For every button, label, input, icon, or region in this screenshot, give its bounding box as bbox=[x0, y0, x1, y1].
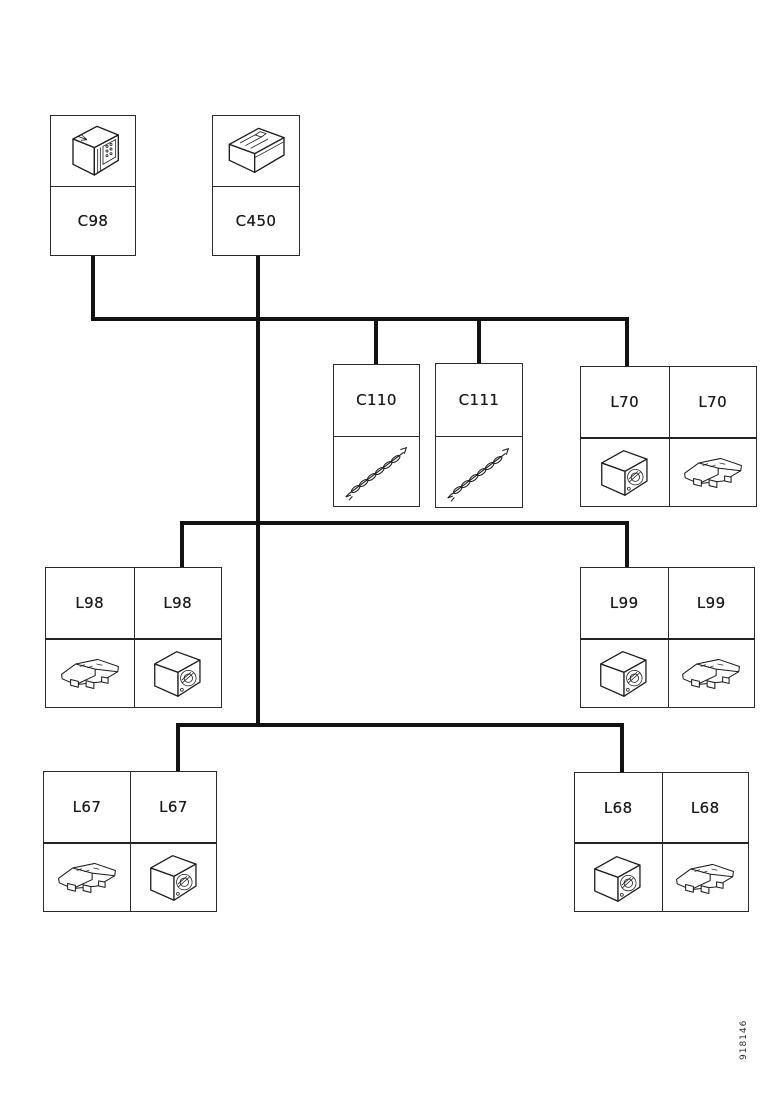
figure-number: 918146 bbox=[739, 1002, 755, 1060]
node-c110-label: C110 bbox=[334, 365, 419, 436]
lamp-unit-icon bbox=[584, 642, 664, 704]
wire-l70-drop bbox=[625, 317, 629, 367]
wiring-harness-icon bbox=[338, 439, 416, 503]
wire-l98-drop bbox=[180, 521, 184, 568]
lamp-bracket-icon bbox=[665, 847, 745, 909]
lamp-bracket-drawing bbox=[46, 638, 134, 708]
node-l70-label-right: L70 bbox=[669, 367, 757, 437]
lamp-bracket-drawing bbox=[44, 842, 130, 912]
relay-module-drawing bbox=[213, 116, 299, 186]
node-l98-label-right: L98 bbox=[134, 568, 222, 638]
wire-bus-2 bbox=[180, 521, 629, 525]
lamp-unit-icon bbox=[138, 642, 218, 704]
wiring-harness-drawing bbox=[436, 436, 522, 508]
lamp-bracket-icon bbox=[47, 846, 127, 908]
lamp-unit-drawing bbox=[134, 638, 222, 708]
node-c98: C98 bbox=[50, 115, 136, 256]
node-c110: C110 bbox=[333, 364, 420, 507]
relay-module-icon bbox=[217, 119, 295, 183]
lamp-unit-drawing bbox=[130, 842, 216, 912]
lamp-unit-icon bbox=[578, 847, 658, 909]
wire-l67-drop bbox=[176, 723, 180, 772]
node-l68-label-right: L68 bbox=[662, 773, 749, 842]
wire-c111-drop bbox=[477, 317, 481, 364]
lamp-bracket-icon bbox=[50, 642, 130, 704]
node-l68: L68 L68 bbox=[574, 772, 749, 912]
control-unit-icon bbox=[54, 119, 132, 183]
node-l67-label-left: L67 bbox=[44, 772, 130, 842]
lamp-bracket-icon bbox=[671, 642, 751, 704]
wire-c450-trunk bbox=[256, 255, 260, 727]
node-l99-label-right: L99 bbox=[668, 568, 755, 638]
node-l99: L99 L99 bbox=[580, 567, 755, 708]
node-c450-label: C450 bbox=[213, 186, 299, 256]
wire-c110-drop bbox=[374, 317, 378, 365]
wire-c98-drop bbox=[91, 255, 95, 321]
node-l67: L67 L67 bbox=[43, 771, 217, 912]
control-unit-drawing bbox=[51, 116, 135, 186]
node-l70-label-left: L70 bbox=[581, 367, 669, 437]
wire-l68-drop bbox=[620, 723, 624, 773]
node-l98-label-left: L98 bbox=[46, 568, 134, 638]
node-c450: C450 bbox=[212, 115, 300, 256]
lamp-bracket-drawing bbox=[669, 437, 757, 507]
wire-bus-3 bbox=[176, 723, 624, 727]
node-l99-label-left: L99 bbox=[581, 568, 668, 638]
node-l98: L98 L98 bbox=[45, 567, 222, 708]
node-c98-label: C98 bbox=[51, 186, 135, 256]
node-l68-label-left: L68 bbox=[575, 773, 662, 842]
diagram-canvas: C98 C450 C110 C111 L70 L70 L98 L98 bbox=[0, 0, 778, 1100]
lamp-bracket-drawing bbox=[668, 638, 755, 708]
node-l70: L70 L70 bbox=[580, 366, 757, 507]
lamp-unit-drawing bbox=[581, 638, 668, 708]
lamp-bracket-icon bbox=[673, 441, 753, 503]
node-c111: C111 bbox=[435, 363, 523, 508]
lamp-bracket-drawing bbox=[662, 842, 749, 911]
wiring-harness-icon bbox=[440, 440, 518, 504]
lamp-unit-icon bbox=[134, 846, 214, 908]
lamp-unit-drawing bbox=[581, 437, 669, 507]
node-l67-label-right: L67 bbox=[130, 772, 216, 842]
lamp-unit-drawing bbox=[575, 842, 662, 911]
wire-bus-1 bbox=[91, 317, 629, 321]
lamp-unit-icon bbox=[585, 441, 665, 503]
wiring-harness-drawing bbox=[334, 436, 419, 507]
node-c111-label: C111 bbox=[436, 364, 522, 436]
wire-l99-drop bbox=[625, 521, 629, 568]
